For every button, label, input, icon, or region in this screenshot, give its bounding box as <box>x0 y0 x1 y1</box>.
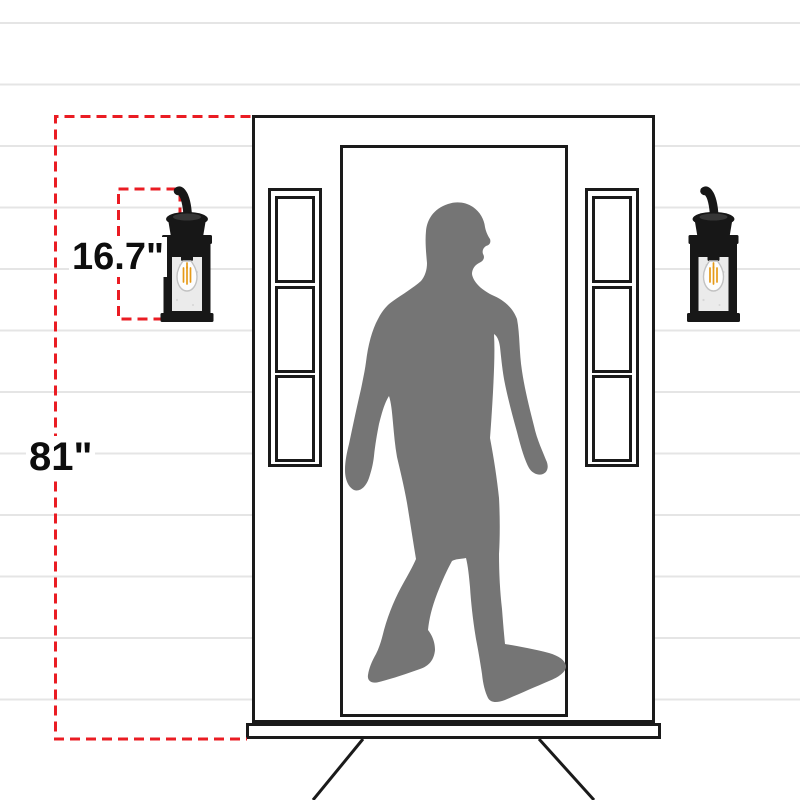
glass-speck <box>719 304 721 306</box>
wall-lantern-left <box>161 191 214 322</box>
glass-speck <box>192 304 194 306</box>
lantern-base <box>687 313 740 322</box>
lantern-canopy-highlight <box>173 214 201 221</box>
glass-speck <box>702 299 704 301</box>
lantern-base <box>161 313 214 322</box>
wall-lantern-right <box>687 191 740 322</box>
lantern-canopy-body <box>695 219 733 237</box>
mounting-height-dimension-line <box>56 117 251 740</box>
lantern-canopy-highlight <box>700 214 728 221</box>
person-silhouette <box>345 202 566 702</box>
glass-speck <box>176 299 178 301</box>
bulb-socket <box>708 254 720 261</box>
step-edge-left <box>313 739 363 800</box>
diagram-overlay <box>0 0 800 800</box>
bulb-socket <box>181 254 193 261</box>
step-edge-right <box>539 739 594 800</box>
lantern-canopy-body <box>168 219 206 237</box>
size-diagram: 16.7" 81" <box>0 0 800 800</box>
fixture-height-label: 16.7" <box>69 237 167 277</box>
mounting-height-label: 81" <box>26 436 95 478</box>
